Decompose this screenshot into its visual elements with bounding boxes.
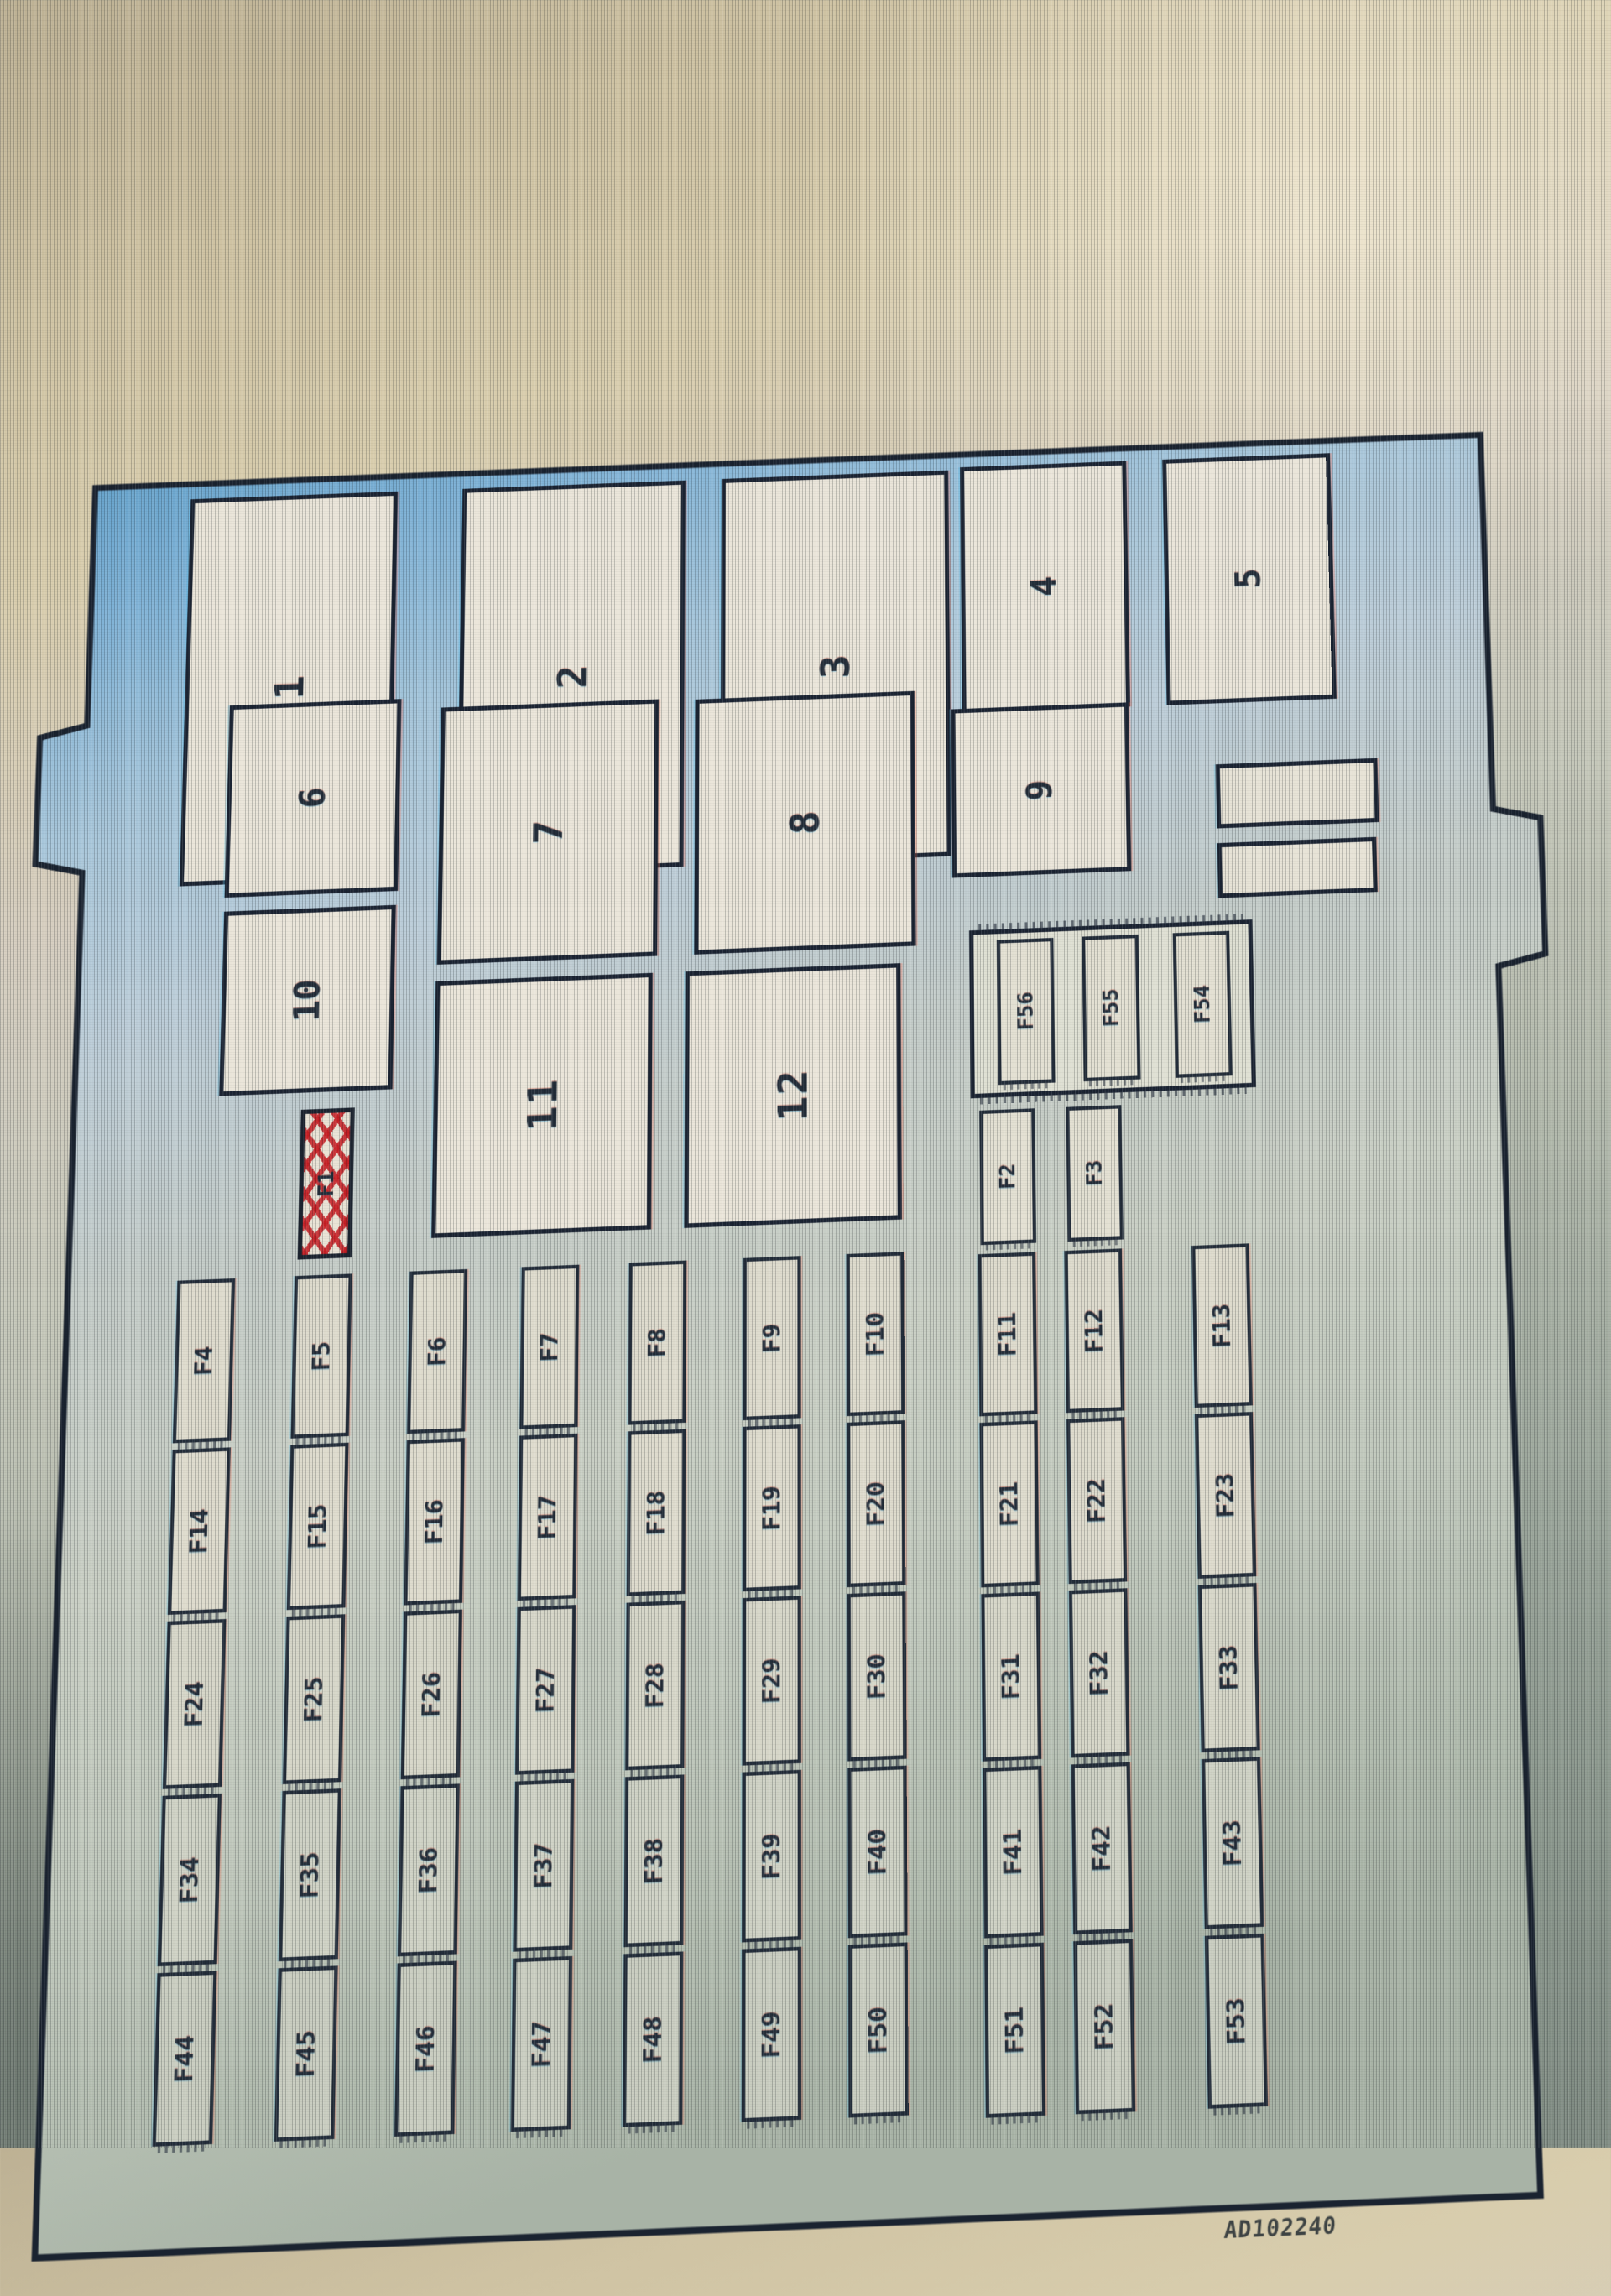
- fuse-label: F55: [1099, 988, 1124, 1028]
- relay-box-12: 12: [684, 963, 902, 1228]
- fuse-label: F27: [532, 1666, 560, 1713]
- relay-label: 1: [266, 674, 312, 700]
- fuse-pill: F24: [163, 1619, 227, 1789]
- relay-label: 3: [812, 653, 858, 679]
- fuse-pill: F49: [742, 1947, 801, 2122]
- relay-box-5: 5: [1162, 453, 1337, 705]
- fuse-slot-F2: F2: [979, 1108, 1036, 1245]
- fuse-pill: F12: [1064, 1248, 1124, 1413]
- relay-label: 11: [519, 1077, 567, 1132]
- fuse-label: F48: [639, 2015, 667, 2064]
- fuse-label: F17: [534, 1493, 561, 1539]
- fuse-label: F54: [1190, 985, 1215, 1024]
- fuse-label: F24: [180, 1680, 209, 1727]
- fuse-pill: F15: [287, 1443, 349, 1611]
- fuse-label: F3: [1082, 1159, 1107, 1186]
- fuse-pill: F16: [404, 1438, 465, 1605]
- fuse-label: F34: [175, 1856, 205, 1903]
- relay-box-7: 7: [437, 700, 659, 965]
- fuse-label: F43: [1218, 1819, 1247, 1866]
- fuse-pill: F8: [628, 1261, 686, 1425]
- fuse-pill: F5: [290, 1273, 352, 1438]
- fuse-pill: F41: [983, 1766, 1044, 1939]
- fuse-label: F45: [291, 2029, 321, 2078]
- fuse-label: F11: [993, 1311, 1021, 1356]
- fuse-label: F6: [424, 1335, 451, 1367]
- fuse-label: F31: [997, 1653, 1024, 1700]
- fuse-label: F9: [759, 1322, 785, 1353]
- fuse-label: F44: [170, 2034, 200, 2083]
- fuse-pill: F17: [518, 1434, 578, 1601]
- fuse-label: F39: [758, 1832, 785, 1880]
- fuse-label: F20: [863, 1481, 890, 1527]
- fuse-pill: F40: [847, 1766, 907, 1939]
- fuse-pill: F7: [519, 1265, 579, 1429]
- fuse-label: F25: [300, 1675, 328, 1722]
- relay-box-8: 8: [694, 691, 915, 955]
- relay-label: 9: [1021, 778, 1061, 801]
- relay-label: 2: [549, 663, 595, 690]
- fuse-pill: F34: [158, 1794, 222, 1966]
- photo-background: { "diagram": { "type": "fuse-box-layout"…: [0, 0, 1611, 2148]
- fuse-pill: F48: [623, 1951, 683, 2127]
- relay-label: 4: [1025, 575, 1065, 597]
- fuse-label: F16: [420, 1498, 449, 1544]
- fuse-pill: F29: [743, 1596, 801, 1765]
- fuse-label: F32: [1085, 1649, 1113, 1696]
- fuse-label: F33: [1215, 1644, 1243, 1691]
- fuse-label: F40: [863, 1828, 891, 1876]
- fuse-label: F41: [998, 1828, 1027, 1876]
- fuse-pill: F4: [173, 1278, 235, 1443]
- fuse-pill: F21: [979, 1420, 1039, 1587]
- fuse-label: F47: [527, 2019, 555, 2068]
- fuse-pill: F18: [627, 1429, 686, 1596]
- fuse-pill: F6: [407, 1269, 467, 1434]
- relay-label: 8: [782, 808, 828, 836]
- fuse-label: F14: [185, 1507, 213, 1554]
- fuse-pill: F35: [279, 1788, 341, 1961]
- fuse-label: F51: [1000, 2006, 1029, 2054]
- fuse-pill: F43: [1202, 1757, 1264, 1929]
- fuse-pill: F25: [283, 1614, 346, 1784]
- marked-fuse-F1: F1: [298, 1107, 355, 1259]
- fuse-label: F37: [529, 1841, 558, 1889]
- fuse-pill: F38: [623, 1774, 684, 1947]
- fuse-label: F23: [1212, 1472, 1240, 1518]
- fuse-pill: F28: [625, 1601, 685, 1771]
- fusebox-diagram: 1 2 3 4 5 6 7 8 9 10 11 12 F56 F55 F54 F…: [0, 424, 1596, 2275]
- relay-label: 12: [769, 1067, 816, 1122]
- fuse-slot-F55: F55: [1082, 935, 1140, 1081]
- fuse-label: F21: [995, 1481, 1023, 1527]
- fuse-pill: F22: [1066, 1417, 1127, 1584]
- relay-box-10: 10: [219, 905, 396, 1096]
- fuse-label: F28: [641, 1662, 669, 1709]
- fuse-label: F49: [758, 2010, 785, 2059]
- fuse-pill: F44: [152, 1971, 216, 2147]
- fuse-pill: F46: [394, 1961, 457, 2137]
- fuse-pill: F45: [274, 1965, 338, 2142]
- fuse-label: F10: [862, 1311, 889, 1356]
- fuse-label: F46: [411, 2024, 440, 2073]
- fuse-label: F2: [995, 1163, 1019, 1190]
- fuse-label: F19: [759, 1485, 786, 1531]
- relay-label: 5: [1229, 567, 1269, 589]
- fuse-pill: F11: [978, 1252, 1038, 1416]
- fuse-pill: F13: [1191, 1243, 1253, 1408]
- fuse-label: F30: [863, 1653, 890, 1700]
- fuse-label: F4: [190, 1345, 217, 1376]
- fuse-label: F7: [536, 1331, 564, 1362]
- fuse-label: F42: [1087, 1825, 1116, 1872]
- fuse-pill: F27: [515, 1605, 576, 1775]
- fuse-slot-F56: F56: [997, 938, 1056, 1085]
- relay-box-11: 11: [431, 973, 653, 1238]
- fuse-pill: F39: [742, 1770, 801, 1943]
- fuse-label: F22: [1082, 1477, 1110, 1523]
- fuse-label: F53: [1222, 1997, 1251, 2045]
- fuse-label: F12: [1081, 1308, 1108, 1353]
- fuse-pill: F42: [1071, 1762, 1132, 1935]
- fuse-label: F50: [864, 2006, 893, 2054]
- fuse-label: F18: [643, 1489, 670, 1535]
- fuse-pill: F32: [1069, 1588, 1130, 1757]
- fuse-pill: F14: [168, 1447, 231, 1615]
- fuse-pill: F50: [848, 1942, 909, 2117]
- fuse-pill: F47: [511, 1956, 573, 2132]
- relay-label: 6: [294, 787, 333, 810]
- relay-box-4: 4: [960, 461, 1130, 714]
- fuse-pill: F51: [984, 1943, 1045, 2118]
- fuse-label: F15: [304, 1502, 332, 1549]
- fuse-slot-F54: F54: [1173, 931, 1233, 1078]
- fuse-pill: F31: [981, 1591, 1041, 1761]
- fuse-slot-F3: F3: [1066, 1105, 1124, 1242]
- fuse-pill: F26: [401, 1610, 462, 1780]
- fuse-pill: F20: [847, 1420, 905, 1587]
- fuse-label: F8: [644, 1327, 671, 1358]
- fuse-pill: F30: [847, 1591, 907, 1761]
- fuse-pill: F53: [1205, 1934, 1268, 2109]
- fuse-label: F26: [417, 1671, 446, 1718]
- fuse-label: F1: [314, 1170, 339, 1197]
- fuse-label: F38: [640, 1836, 669, 1884]
- fuse-label: F13: [1208, 1303, 1236, 1348]
- fuse-pill: F52: [1073, 1939, 1135, 2114]
- fuse-label: F56: [1014, 992, 1038, 1031]
- fuse-label: F52: [1090, 2002, 1118, 2050]
- spare-bar-2: [1217, 837, 1378, 898]
- fuse-pill: F37: [513, 1779, 574, 1952]
- fuse-pill: F23: [1195, 1412, 1256, 1579]
- relay-label: 7: [525, 817, 571, 845]
- fuse-pill: F33: [1198, 1583, 1260, 1752]
- fuse-label: F36: [414, 1846, 443, 1893]
- relay-label: 10: [288, 978, 328, 1023]
- fuse-label: F29: [758, 1657, 785, 1704]
- relay-box-9: 9: [951, 702, 1131, 877]
- fuse-label: F5: [308, 1341, 336, 1372]
- fuse-pill: F19: [743, 1424, 801, 1591]
- fuse-label: F35: [295, 1851, 324, 1898]
- fuse-pill: F36: [398, 1783, 460, 1956]
- spare-bar-1: [1216, 758, 1379, 829]
- fuse-pill: F9: [743, 1256, 801, 1420]
- relay-box-6: 6: [225, 699, 402, 898]
- fuse-pill: F10: [847, 1252, 905, 1416]
